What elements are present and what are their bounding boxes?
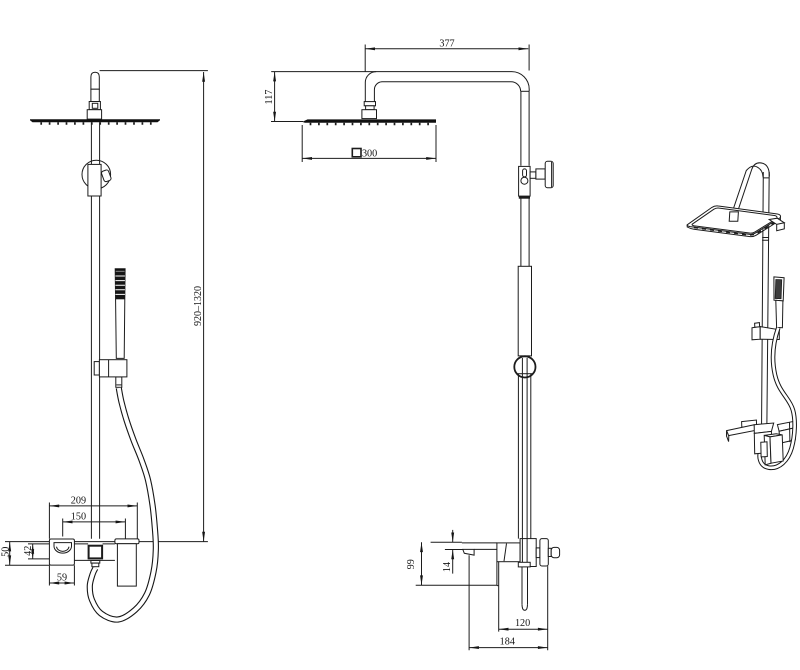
svg-text:300: 300 — [362, 149, 377, 160]
svg-text:920–1320: 920–1320 — [193, 286, 204, 326]
svg-text:99: 99 — [406, 559, 417, 569]
svg-text:117: 117 — [264, 90, 275, 105]
svg-text:120: 120 — [515, 618, 530, 629]
svg-text:150: 150 — [71, 511, 86, 522]
svg-text:209: 209 — [71, 495, 86, 506]
svg-text:184: 184 — [500, 637, 515, 648]
svg-text:377: 377 — [439, 39, 454, 50]
svg-text:50: 50 — [0, 547, 11, 557]
svg-text:42: 42 — [23, 546, 34, 556]
svg-text:14: 14 — [442, 562, 453, 572]
svg-text:59: 59 — [57, 572, 67, 583]
